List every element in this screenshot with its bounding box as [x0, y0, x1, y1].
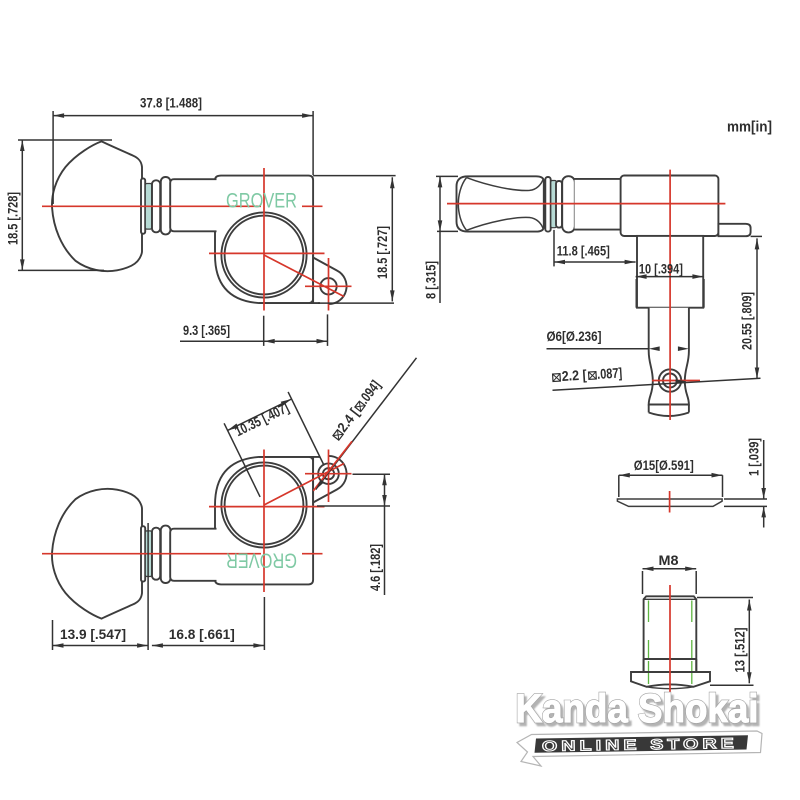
svg-text:4.6 [.182]: 4.6 [.182]: [367, 544, 383, 591]
svg-text:13.9 [.547]: 13.9 [.547]: [60, 626, 126, 642]
svg-text:Kanda Shokai: Kanda Shokai: [516, 687, 759, 731]
svg-text:.087]: .087]: [597, 364, 623, 381]
svg-text:16.8 [.661]: 16.8 [.661]: [169, 626, 235, 642]
svg-text:mm[in]: mm[in]: [727, 119, 772, 136]
svg-text:Ø15[Ø.591]: Ø15[Ø.591]: [634, 457, 694, 473]
svg-text:GROVER: GROVER: [226, 549, 297, 572]
svg-text:8 [.315]: 8 [.315]: [423, 261, 439, 299]
svg-text:20.55 [.809]: 20.55 [.809]: [739, 292, 755, 350]
svg-text:18.5 [.727]: 18.5 [.727]: [374, 226, 390, 279]
svg-text:10 [.394]: 10 [.394]: [639, 260, 683, 276]
svg-text:Ø6[Ø.236]: Ø6[Ø.236]: [547, 328, 602, 344]
svg-text:1 [.039]: 1 [.039]: [746, 438, 762, 476]
svg-text:GROVER: GROVER: [226, 190, 297, 213]
svg-text:18.5 [.728]: 18.5 [.728]: [5, 192, 21, 245]
svg-text:11.8 [.465]: 11.8 [.465]: [557, 242, 610, 258]
svg-text:9.3 [.365]: 9.3 [.365]: [183, 322, 230, 338]
svg-text:13 [.512]: 13 [.512]: [731, 628, 747, 673]
svg-text:ONLINE STORE: ONLINE STORE: [542, 736, 738, 755]
svg-text:M8: M8: [659, 552, 679, 568]
svg-text:2.2 [: 2.2 [: [561, 367, 587, 384]
svg-text:37.8 [1.488]: 37.8 [1.488]: [140, 95, 202, 111]
